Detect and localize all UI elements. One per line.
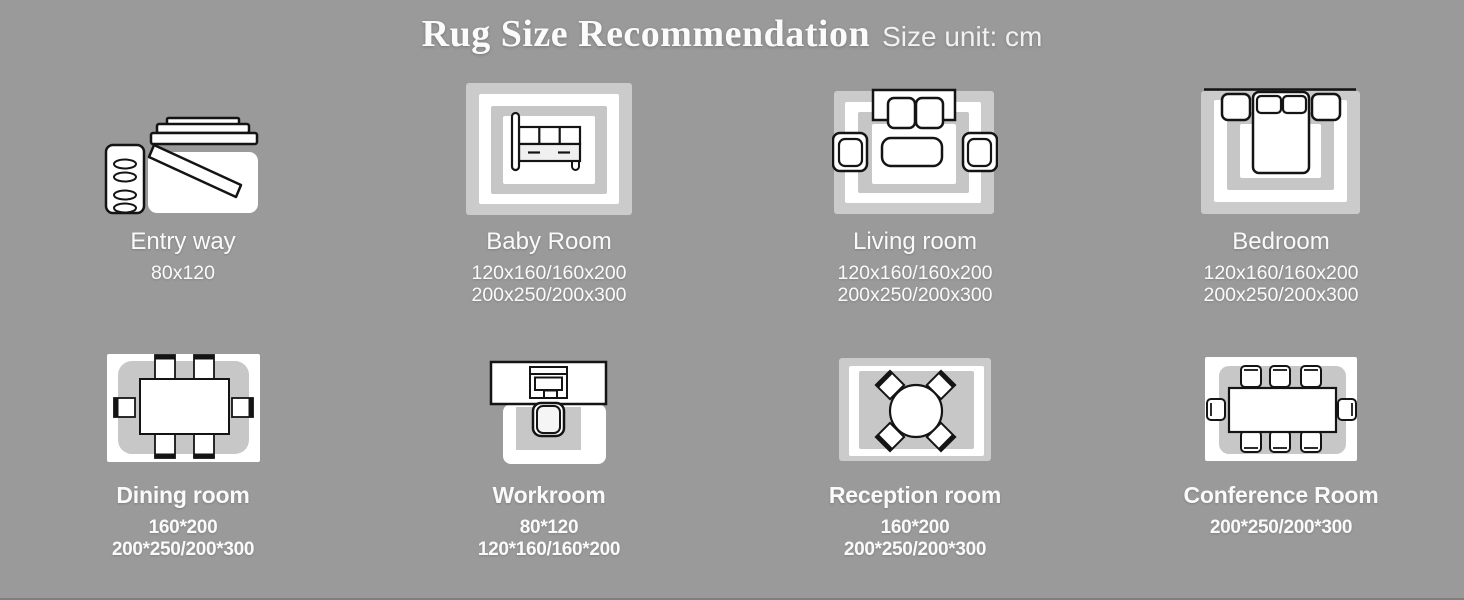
room-sizes: 120x160/160x200 200x250/200x300 xyxy=(837,262,992,306)
header: Rug Size RecommendationSize unit: cm xyxy=(0,0,1464,56)
conference-table xyxy=(1229,388,1336,432)
room-card-workroom: Workroom 80*120 120*160/160*200 xyxy=(366,306,732,561)
room-sizes: 200*250/200*300 xyxy=(1210,517,1352,539)
conference-room-icon xyxy=(1201,342,1361,464)
room-card-baby-room: Baby Room 120x160/160x200 200x250/200x30… xyxy=(366,76,732,306)
nightstand-right xyxy=(1312,94,1340,120)
dining-room-illustration xyxy=(106,352,261,464)
armchair-left xyxy=(833,133,867,171)
room-name: Workroom xyxy=(493,482,606,509)
workroom-icon xyxy=(484,342,614,464)
room-name: Entry way xyxy=(130,228,235,256)
size-unit-note: Size unit: cm xyxy=(882,21,1042,52)
conference-room-illustration xyxy=(1201,354,1361,464)
reception-room-icon xyxy=(836,342,994,464)
room-card-bedroom: Bedroom 120x160/160x200 200x250/200x300 xyxy=(1098,76,1464,306)
room-name: Baby Room xyxy=(486,228,611,256)
bedroom-illustration xyxy=(1198,87,1364,216)
bed xyxy=(1253,92,1309,173)
monitor xyxy=(530,367,567,398)
room-sizes: 120x160/160x200 200x250/200x300 xyxy=(1203,262,1358,306)
room-name: Dining room xyxy=(116,482,249,509)
reception-room-illustration xyxy=(836,354,994,464)
desk-chair xyxy=(533,403,564,436)
room-name: Bedroom xyxy=(1232,228,1329,256)
entry-way-illustration xyxy=(92,106,274,216)
nightstand-left xyxy=(1222,94,1250,120)
baby-room-icon xyxy=(466,76,632,216)
room-name: Conference Room xyxy=(1183,482,1378,509)
coffee-table xyxy=(882,138,942,166)
entry-way-icon xyxy=(92,76,274,216)
room-sizes: 80*120 120*160/160*200 xyxy=(478,517,620,561)
armchair-right xyxy=(963,133,997,171)
room-card-dining-room: Dining room 160*200 200*250/200*300 xyxy=(0,306,366,561)
console-table xyxy=(151,118,257,144)
room-sizes: 80x120 xyxy=(151,262,215,284)
round-table xyxy=(890,385,942,437)
room-name: Living room xyxy=(853,228,977,256)
living-room-illustration xyxy=(832,88,998,216)
rooms-grid: Entry way 80x120 xyxy=(0,76,1464,561)
room-name: Reception room xyxy=(829,482,1001,509)
workroom-illustration xyxy=(484,359,614,464)
room-sizes: 160*200 200*250/200*300 xyxy=(112,517,254,561)
room-card-conference-room: Conference Room 200*250/200*300 xyxy=(1098,306,1464,561)
room-card-entry-way: Entry way 80x120 xyxy=(0,76,366,306)
room-card-living-room: Living room 120x160/160x200 200x250/200x… xyxy=(732,76,1098,306)
room-sizes: 120x160/160x200 200x250/200x300 xyxy=(471,262,626,306)
room-card-reception-room: Reception room 160*200 200*250/200*300 xyxy=(732,306,1098,561)
dining-room-icon xyxy=(106,342,261,464)
dining-table xyxy=(140,379,229,434)
page-title: Rug Size Recommendation xyxy=(422,13,870,55)
shoe-cabinet xyxy=(106,145,144,213)
bedroom-icon xyxy=(1198,76,1364,216)
room-sizes: 160*200 200*250/200*300 xyxy=(844,517,986,561)
baby-room-illustration xyxy=(466,83,632,216)
living-room-icon xyxy=(832,76,998,216)
